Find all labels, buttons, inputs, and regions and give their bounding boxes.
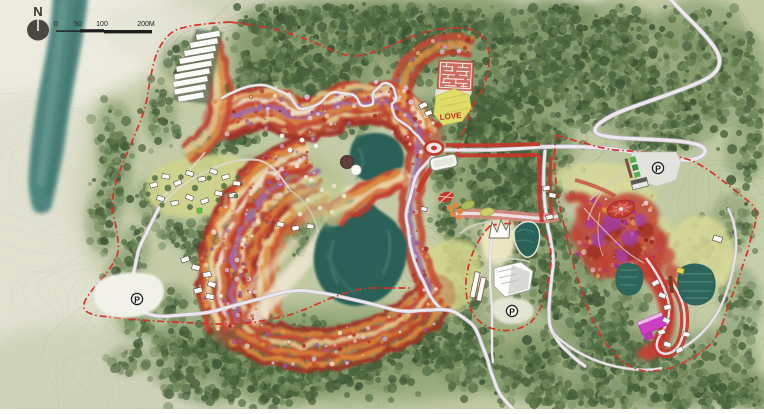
svg-text:P: P — [509, 307, 515, 317]
svg-text:0: 0 — [54, 21, 58, 28]
svg-text:P: P — [134, 295, 140, 305]
svg-text:100: 100 — [96, 21, 108, 28]
svg-text:50: 50 — [74, 21, 82, 28]
svg-text:P: P — [655, 164, 661, 174]
svg-text:N: N — [33, 4, 42, 19]
svg-text:200M: 200M — [137, 21, 155, 28]
